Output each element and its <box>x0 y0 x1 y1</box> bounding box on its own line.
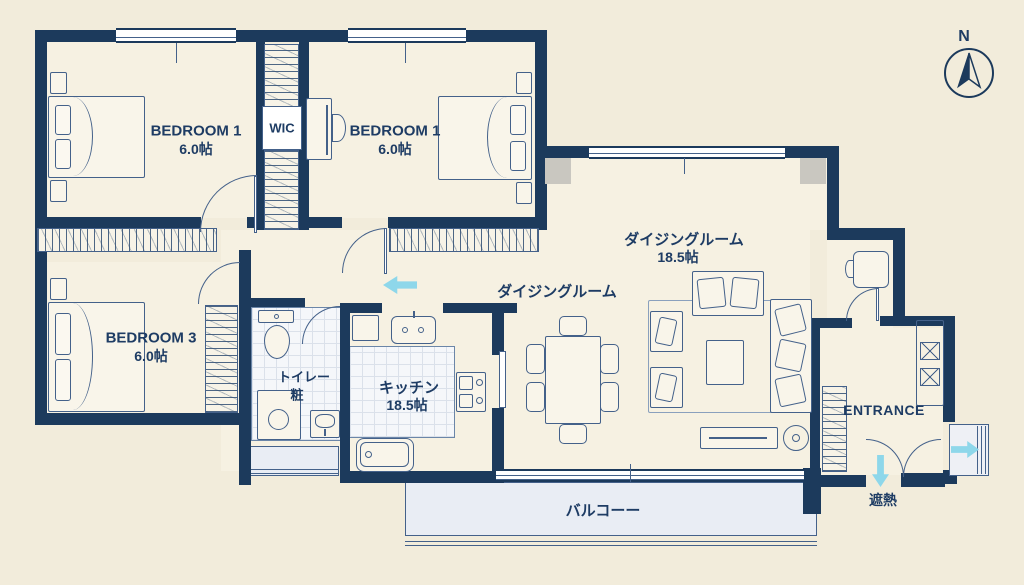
entrance-closet <box>822 386 847 472</box>
wall <box>893 228 905 326</box>
dining-chair <box>600 382 619 412</box>
wall <box>340 303 350 483</box>
entrance-armchair-side <box>845 260 854 278</box>
kitchen-area: 18.5帖 <box>386 395 427 415</box>
dining-area: 18.5帖 <box>657 247 698 267</box>
toilet-tank <box>258 310 294 323</box>
bed <box>438 96 532 180</box>
bedroom2-door-leaf <box>384 228 387 274</box>
dining-chair <box>559 424 587 444</box>
washbasin <box>310 410 340 438</box>
balcony-label: バルコーー <box>566 500 641 521</box>
wic-label: WIC <box>269 121 294 136</box>
window-tick <box>630 464 631 482</box>
wall <box>443 303 517 313</box>
nightstand <box>50 278 67 300</box>
wall <box>492 303 504 355</box>
entrance-hall-door-leaf <box>876 288 879 321</box>
front-door-tracks <box>977 426 988 474</box>
nightstand <box>50 180 67 202</box>
bedroom2-closet <box>389 228 539 252</box>
wic-rack-upper <box>264 44 299 108</box>
bedroom2-window <box>348 28 466 43</box>
balcony-edge-line <box>405 541 817 542</box>
wall <box>251 298 305 307</box>
kitchen-sliding-door-leaf <box>499 351 506 408</box>
bedroom3-area: 6.0帖 <box>134 346 167 366</box>
armchair <box>650 311 683 352</box>
dining-chair <box>559 316 587 336</box>
wall <box>35 217 201 228</box>
toilet-label-line1: トイレー <box>278 367 330 386</box>
entrance-armchair <box>853 251 889 288</box>
wall <box>943 322 955 422</box>
kitchen-sink <box>391 316 436 344</box>
refrigerator <box>352 315 379 341</box>
wall <box>239 250 251 485</box>
bedroom1-area: 6.0帖 <box>179 139 212 159</box>
compass-north-label: N <box>958 28 970 46</box>
floor-plan: BEDROOM 1 6.0帖 BEDROOM 1 6.0帖 BEDROOM 3 … <box>0 0 1024 585</box>
wall <box>547 146 591 158</box>
compass-icon <box>943 47 995 99</box>
armchair <box>650 367 683 408</box>
window-tick <box>684 158 685 174</box>
wall <box>35 413 251 425</box>
bedroom3-name: BEDROOM 3 <box>106 330 197 347</box>
bed <box>48 302 145 412</box>
wic-rack-lower <box>264 150 299 230</box>
nightstand <box>516 72 532 94</box>
toilet-label-line2: 粧 <box>290 385 303 404</box>
desk <box>306 98 332 160</box>
dining-chair <box>526 344 545 374</box>
shoe-box <box>920 342 940 360</box>
bedroom3-closet <box>205 305 238 413</box>
window-band-below-toilet <box>246 446 339 476</box>
wall <box>340 471 496 483</box>
wall <box>535 30 547 230</box>
loveseat-sofa <box>692 271 764 316</box>
band-edge-line <box>246 473 339 474</box>
wall <box>820 475 866 487</box>
heat-shield-label: 遮熱 <box>869 490 897 510</box>
entrance-label: ENTRANCE <box>843 402 925 418</box>
balcony-edge-line <box>405 545 817 546</box>
bathtub <box>356 438 414 472</box>
bedroom1-window <box>116 28 236 43</box>
nightstand <box>50 72 67 94</box>
nightstand <box>516 182 532 204</box>
shoe-box <box>920 368 940 386</box>
coffee-table <box>706 340 744 385</box>
pillar <box>800 158 826 184</box>
dining-chair <box>526 382 545 412</box>
pillar <box>545 158 571 184</box>
wall <box>803 468 821 514</box>
bedroom2-name: BEDROOM 1 <box>350 123 441 140</box>
window-tick <box>176 43 177 63</box>
floor-lamp-center <box>792 434 800 442</box>
wall <box>308 217 342 228</box>
three-seat-sofa <box>770 299 812 413</box>
dining-window <box>589 146 785 159</box>
bedroom2-area: 6.0帖 <box>378 139 411 159</box>
wall <box>35 30 547 42</box>
band-edge-line <box>246 469 339 470</box>
bedroom1-door-leaf <box>254 176 257 233</box>
dining-table <box>545 336 601 424</box>
balcony-sliding-door <box>496 469 804 482</box>
bed <box>48 96 145 178</box>
bedroom1-name: BEDROOM 1 <box>151 123 242 140</box>
dining-chair <box>600 344 619 374</box>
wall <box>827 146 839 240</box>
bedroom1-closet <box>37 228 217 252</box>
shoe-cabinet <box>916 320 944 406</box>
tv-board <box>700 427 778 449</box>
wall <box>388 217 547 228</box>
dining-upper-floor <box>547 158 827 230</box>
stove <box>456 372 486 412</box>
window-tick <box>405 43 406 63</box>
dining-secondary-label: ダイジングルーム <box>497 281 617 302</box>
